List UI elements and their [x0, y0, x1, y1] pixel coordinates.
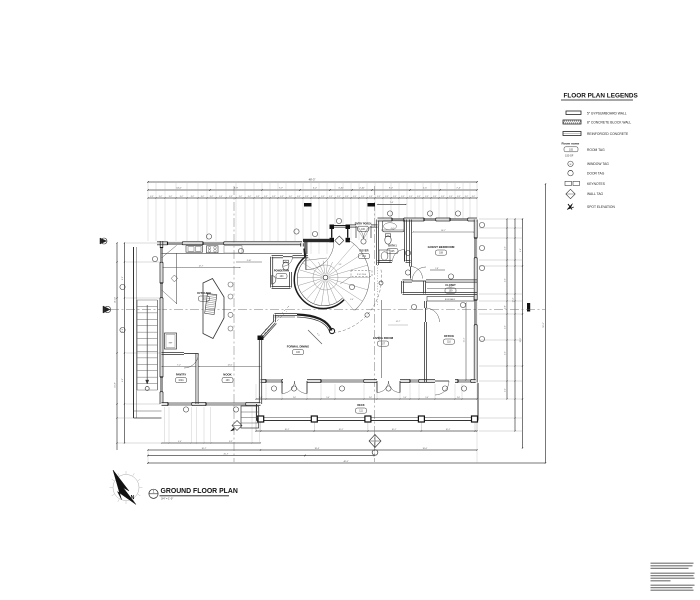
svg-text:3’-2”: 3’-2” [313, 196, 317, 198]
svg-text:12’-6”: 12’-6” [379, 335, 381, 340]
svg-text:16’-0”: 16’-0” [423, 448, 428, 450]
svg-text:102A: 102A [178, 379, 184, 382]
svg-text:OFFICE: OFFICE [444, 334, 454, 338]
svg-text:5’-6”: 5’-6” [425, 397, 429, 399]
svg-text:8’-0”: 8’-0” [122, 276, 124, 280]
svg-text:3’-2”: 3’-2” [201, 196, 205, 198]
svg-text:3’-2”: 3’-2” [353, 196, 357, 198]
svg-text:3’-2”: 3’-2” [393, 196, 397, 198]
svg-text:3’-2”: 3’-2” [441, 196, 445, 198]
svg-text:4’-0”: 4’-0” [178, 441, 182, 443]
svg-text:4’-6”: 4’-6” [122, 378, 124, 382]
svg-text:3’-2”: 3’-2” [297, 196, 301, 198]
svg-text:2’-6”: 2’-6” [505, 325, 507, 329]
svg-text:SPOT ELEVATION: SPOT ELEVATION [587, 205, 615, 209]
svg-text:3’-2”: 3’-2” [159, 196, 163, 198]
svg-text:5’-6”: 5’-6” [326, 397, 330, 399]
svg-text:3’-10”: 3’-10” [247, 260, 252, 262]
svg-text:2’-4”: 2’-4” [505, 388, 507, 392]
svg-text:DECK: DECK [357, 403, 364, 407]
svg-text:N: N [131, 495, 135, 501]
svg-text:3’-2”: 3’-2” [385, 196, 389, 198]
svg-text:25’-7”: 25’-7” [224, 453, 229, 455]
svg-text:3’-2”: 3’-2” [210, 196, 214, 198]
svg-text:19’-10”: 19’-10” [115, 297, 117, 304]
svg-text:48’-9”: 48’-9” [343, 461, 348, 463]
svg-text:5’-2”: 5’-2” [313, 188, 317, 190]
svg-text:ENTRY PORCH: ENTRY PORCH [355, 223, 372, 225]
svg-text:GROUND FLOOR PLAN: GROUND FLOOR PLAN [161, 488, 238, 495]
svg-text:8” CONCRETE BLOCK WALL: 8” CONCRETE BLOCK WALL [587, 121, 631, 125]
svg-text:3’-2”: 3’-2” [361, 196, 365, 198]
svg-text:10’-1”: 10’-1” [339, 429, 344, 431]
svg-text:BATH 1: BATH 1 [388, 245, 397, 248]
svg-text:5’-6”: 5’-6” [293, 397, 297, 399]
svg-text:10’-2”: 10’-2” [520, 337, 522, 342]
svg-text:3’-2”: 3’-2” [229, 196, 233, 198]
svg-text:3’-2”: 3’-2” [280, 196, 284, 198]
svg-text:50’-6”: 50’-6” [543, 322, 545, 327]
svg-text:12’-0”: 12’-0” [228, 364, 233, 366]
svg-text:5’-6”: 5’-6” [403, 397, 407, 399]
svg-text:48’-3”: 48’-3” [309, 178, 316, 182]
svg-text:PANTRY: PANTRY [176, 373, 187, 377]
svg-text:7’-7”: 7’-7” [279, 188, 283, 190]
svg-text:FORMAL DINING: FORMAL DINING [287, 345, 309, 349]
svg-text:3’-2”: 3’-2” [377, 196, 381, 198]
svg-text:16’-7”: 16’-7” [441, 230, 446, 232]
svg-text:3’-2”: 3’-2” [449, 196, 453, 198]
svg-text:3’-2”: 3’-2” [239, 196, 243, 198]
svg-text:KEYNOTES: KEYNOTES [587, 182, 606, 186]
svg-text:GUEST BEDROOM: GUEST BEDROOM [428, 245, 455, 249]
svg-text:REINFORCED CONCRETE: REINFORCED CONCRETE [587, 132, 629, 136]
svg-text:3’-2”: 3’-2” [329, 196, 333, 198]
svg-text:3’-6”: 3’-6” [350, 299, 354, 301]
svg-text:3’-2”: 3’-2” [150, 196, 154, 198]
svg-text:3’-2”: 3’-2” [321, 196, 325, 198]
svg-text:FLOOR PLAN LEGENDS: FLOOR PLAN LEGENDS [564, 93, 639, 100]
svg-text:5’-6”: 5’-6” [122, 328, 124, 332]
svg-text:5’-0” CLG: 5’-0” CLG [357, 274, 366, 276]
svg-text:2’-6”: 2’-6” [505, 278, 507, 282]
svg-text:9’-8”: 9’-8” [520, 248, 522, 252]
svg-text:12’-4”: 12’-4” [513, 297, 515, 302]
svg-text:3’-2”: 3’-2” [369, 196, 373, 198]
svg-text:3’-2”: 3’-2” [248, 196, 252, 198]
svg-text:150 SF: 150 SF [565, 154, 574, 158]
svg-text:3’-2”: 3’-2” [401, 196, 405, 198]
svg-text:3’-2”: 3’-2” [472, 196, 476, 198]
svg-text:5’-6”: 5’-6” [369, 397, 373, 399]
svg-text:3’-2”: 3’-2” [289, 196, 293, 198]
svg-text:3’-2”: 3’-2” [272, 196, 276, 198]
svg-text:BOOKSHELF: BOOKSHELF [445, 299, 455, 301]
svg-text:7’-2”: 7’-2” [177, 364, 181, 366]
svg-text:ROOM TAG: ROOM TAG [587, 148, 605, 152]
svg-text:3’-2”: 3’-2” [465, 196, 469, 198]
svg-text:6’-0”: 6’-0” [391, 228, 395, 230]
svg-text:2’-6”: 2’-6” [505, 351, 507, 355]
svg-text:7’-4”: 7’-4” [390, 202, 394, 204]
svg-text:5” GYPSUMBOARD WALL: 5” GYPSUMBOARD WALL [587, 111, 627, 115]
svg-text:2’-6”: 2’-6” [505, 246, 507, 250]
svg-text:16’-7”: 16’-7” [202, 448, 207, 450]
svg-text:3/4” = 1’-0”: 3/4” = 1’-0” [161, 498, 173, 501]
svg-text:5’-6”: 5’-6” [259, 397, 263, 399]
svg-text:3’-2”: 3’-2” [219, 196, 223, 198]
svg-text:14’-5”: 14’-5” [176, 188, 182, 190]
svg-text:12’-7”: 12’-7” [199, 265, 204, 267]
svg-text:18’-4”: 18’-4” [315, 448, 320, 450]
svg-text:KITCHEN: KITCHEN [197, 291, 210, 295]
svg-text:2’-8”: 2’-8” [435, 268, 439, 270]
svg-text:W: W [570, 164, 572, 166]
svg-text:3’-2”: 3’-2” [169, 196, 173, 198]
svg-text:105: 105 [569, 148, 574, 151]
svg-text:LIVING ROOM: LIVING ROOM [373, 336, 394, 340]
svg-text:POWDER RM: POWDER RM [274, 270, 289, 273]
svg-text:3’-2”: 3’-2” [417, 196, 421, 198]
svg-text:2’-0”: 2’-0” [505, 305, 507, 309]
svg-text:FOYER: FOYER [360, 249, 369, 253]
svg-text:16’-8”: 16’-8” [115, 382, 117, 387]
svg-text:3’-2”: 3’-2” [337, 196, 341, 198]
svg-text:3’-2”: 3’-2” [305, 196, 309, 198]
svg-text:3’-2”: 3’-2” [191, 196, 195, 198]
svg-text:8’-2”: 8’-2” [229, 441, 233, 443]
svg-text:3’-2”: 3’-2” [264, 196, 268, 198]
svg-text:14’-7”: 14’-7” [396, 321, 401, 323]
svg-text:5’-6”: 5’-6” [457, 397, 461, 399]
svg-text:1: 1 [153, 490, 155, 494]
svg-text:5’-5”: 5’-5” [423, 188, 427, 190]
svg-text:10’-1”: 10’-1” [392, 429, 397, 431]
svg-text:8’-0”: 8’-0” [449, 286, 453, 288]
svg-text:7’-4”: 7’-4” [456, 188, 460, 190]
svg-text:2’-10”: 2’-10” [359, 188, 365, 190]
svg-text:11’-1”: 11’-1” [464, 337, 466, 342]
svg-text:3’-2”: 3’-2” [425, 196, 429, 198]
svg-text:10’-1”: 10’-1” [446, 429, 451, 431]
svg-text:WINDOW TAG: WINDOW TAG [587, 162, 609, 166]
svg-text:Room name: Room name [562, 142, 580, 146]
svg-text:3’-2”: 3’-2” [457, 196, 461, 198]
svg-text:3’-2”: 3’-2” [180, 196, 184, 198]
svg-text:3’-2”: 3’-2” [409, 196, 413, 198]
svg-text:NOOK: NOOK [223, 373, 231, 377]
svg-text:3’-2”: 3’-2” [345, 196, 349, 198]
svg-text:10’-1”: 10’-1” [285, 429, 290, 431]
svg-text:3’-2”: 3’-2” [256, 196, 260, 198]
svg-text:WALL TAG: WALL TAG [587, 192, 604, 196]
svg-text:DOOR TAG: DOOR TAG [587, 171, 605, 175]
svg-text:3’-2”: 3’-2” [433, 196, 437, 198]
